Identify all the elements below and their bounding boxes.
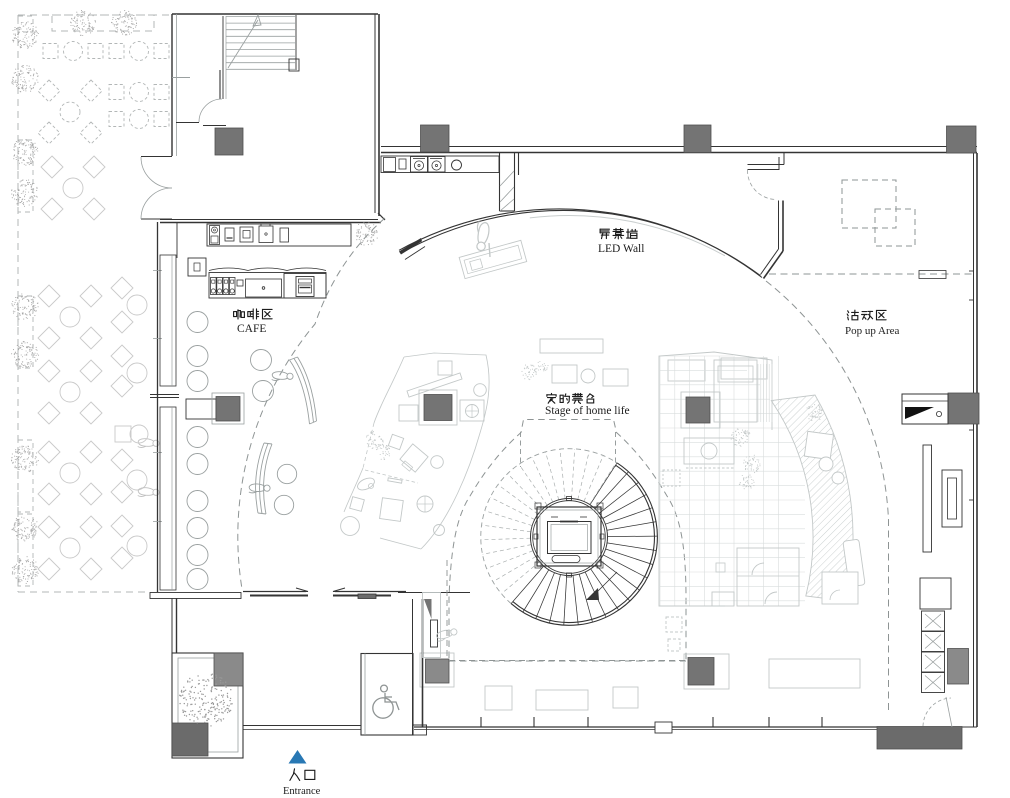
svg-text:LED Wall: LED Wall (598, 243, 644, 255)
svg-text:Entrance: Entrance (283, 786, 321, 797)
svg-text:Pop up Area: Pop up Area (845, 325, 900, 337)
svg-text:Stage of home life: Stage of home life (545, 405, 630, 417)
svg-text:CAFE: CAFE (237, 323, 266, 335)
